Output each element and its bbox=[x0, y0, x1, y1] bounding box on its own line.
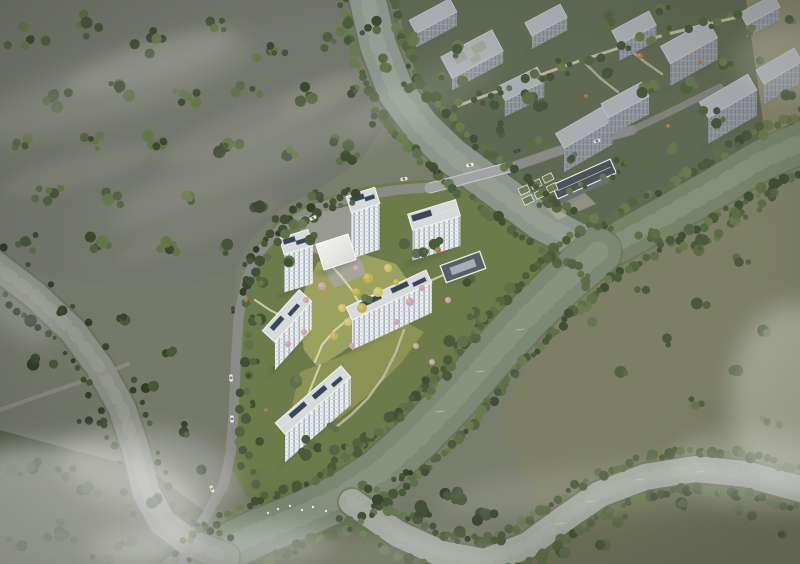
aerial-rendering-stage bbox=[0, 0, 800, 564]
aerial-site-rendering bbox=[0, 0, 800, 564]
vignette-overlay bbox=[0, 0, 800, 564]
